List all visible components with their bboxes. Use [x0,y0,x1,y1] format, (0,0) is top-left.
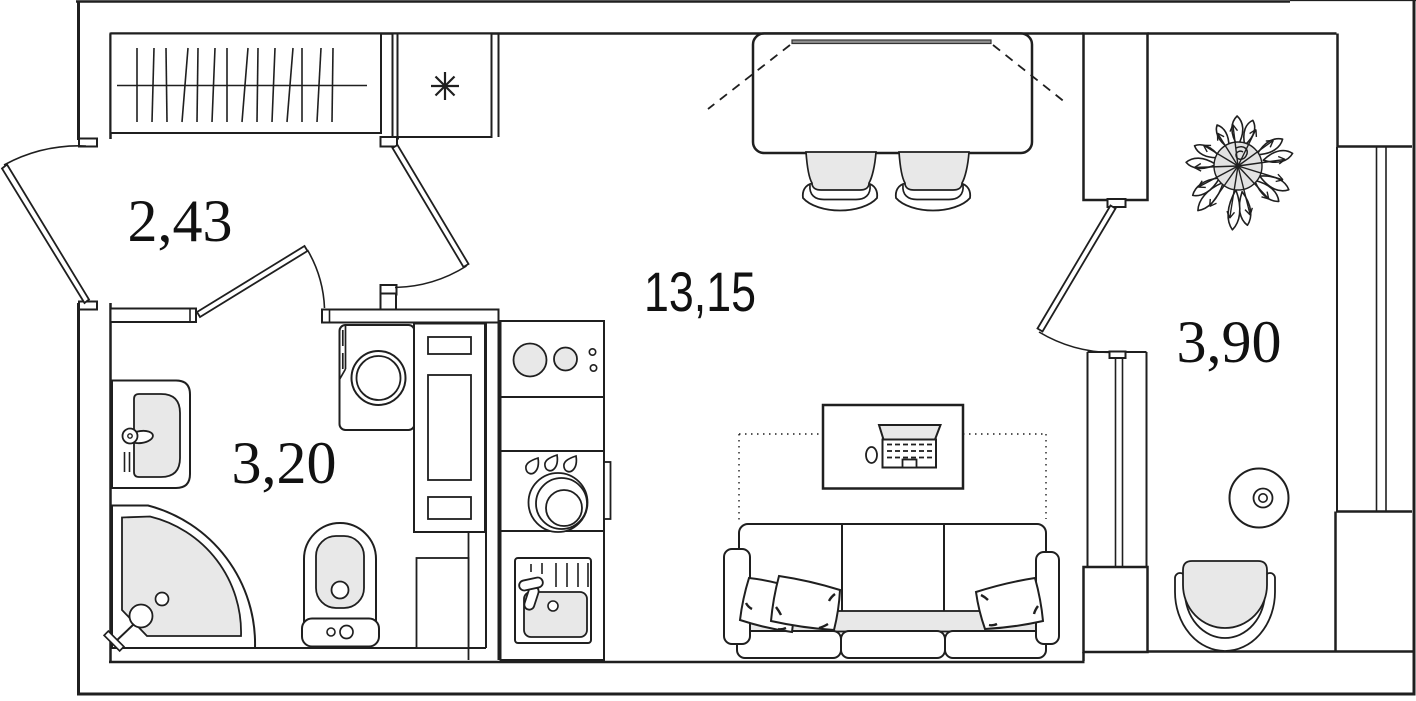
svg-text:2,43: 2,43 [128,188,233,254]
svg-text:3,90: 3,90 [1177,309,1282,375]
svg-text:3,20: 3,20 [232,430,337,496]
svg-text:13,15: 13,15 [644,260,756,323]
